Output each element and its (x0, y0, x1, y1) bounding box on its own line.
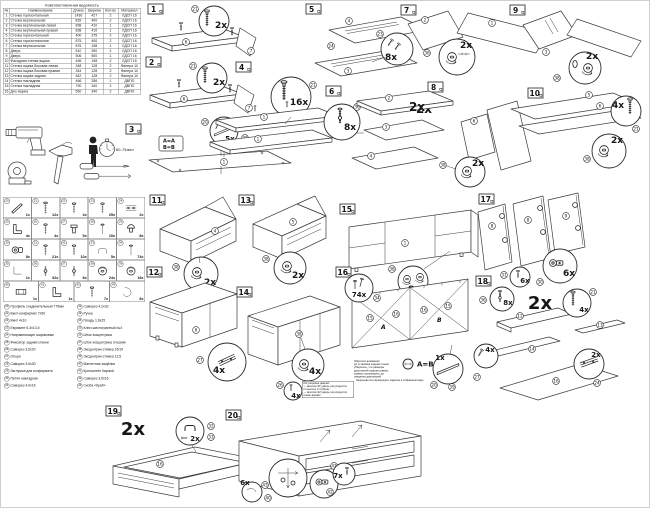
legend-item-text: Опора (11, 355, 21, 359)
hardware-icon (95, 264, 109, 278)
legend-item: 42 Саморез 3,5х16 (77, 375, 148, 382)
legend-item-number: 20 (4, 304, 10, 310)
legend-item: 31 Саморез 4,0х16 (4, 382, 75, 389)
hardware-item-qty: 5x (111, 255, 115, 260)
hardware-item: 25 4x (3, 218, 31, 239)
part-bubble: 9 (563, 213, 570, 220)
legend-item-number: 22 (4, 318, 10, 324)
hardware-icon (95, 243, 109, 257)
svg-text:7: 7 (248, 106, 251, 111)
svg-text:3: 3 (385, 125, 388, 130)
svg-text:9: 9 (565, 214, 568, 219)
svg-text:10: 10 (530, 89, 540, 98)
hardware-item-qty: 10x (80, 255, 86, 260)
part-bubble: 23 (377, 31, 384, 38)
part-bubble: 16 (157, 461, 164, 468)
svg-text:23: 23 (377, 32, 383, 37)
hardware-icon (39, 243, 53, 257)
tools-panel: 60-75мин (6, 127, 134, 184)
part-bubble: 3 (345, 68, 352, 75)
part-bubble: 24 (328, 43, 335, 50)
hardware-item: 27 5x (60, 218, 88, 239)
hardware-item-number: 21 (32, 198, 38, 204)
part-bubble: 2 (386, 95, 393, 102)
part-bubble: 6 (597, 103, 604, 110)
legend-item-number: 27 (4, 354, 10, 360)
qty-label: 2x (213, 78, 225, 88)
svg-text:18: 18 (478, 277, 488, 286)
col-header-wid: Ширина (86, 8, 103, 13)
screwdriver-flat-icon (80, 164, 129, 170)
svg-text:38: 38 (296, 332, 302, 337)
hardware-item-qty: 1x (68, 297, 72, 302)
part-bubble: 6 (181, 96, 188, 103)
hardware-item-qty: 21x (52, 255, 58, 260)
hardware-item-qty: 7x (104, 297, 108, 302)
assembly-time-label: 60-75мин (116, 148, 134, 152)
legend-item-text: Гвоздь 1,6х25 (84, 319, 106, 323)
assembly-instructions-sheet: 60-75мин 1 2x 21 6 7 2 2x 21 6 7 3 (0, 0, 650, 508)
hardware-item-qty: 5x (83, 234, 87, 239)
legend-item-text: Скоба «Краб» (84, 384, 106, 388)
hardware-item-qty: 12x (52, 213, 58, 218)
svg-text:2: 2 (424, 18, 427, 23)
svg-text:38: 38 (440, 163, 446, 168)
svg-text:16: 16 (393, 312, 399, 317)
legend-item-text: Саморез 3,5х16 (84, 377, 109, 381)
svg-text:16: 16 (553, 379, 559, 384)
hardware-item: 43 6x (110, 281, 146, 302)
part-bubble: 4 (212, 228, 219, 235)
hardware-item-number: 31 (32, 240, 38, 246)
svg-text:12: 12 (149, 268, 159, 277)
hardware-grid: 20 1x 21 12x 22 4x 23 25x (3, 197, 145, 302)
hardware-icon (39, 264, 53, 278)
parts-table: Комплектовочная ведомость № Наименование… (3, 3, 141, 94)
hardware-item-qty: 8x (83, 276, 87, 281)
hardware-item-qty: 1x (26, 213, 30, 218)
legend-item-text: Саморез 4,0х16 (11, 384, 36, 388)
svg-text:34: 34 (374, 296, 380, 301)
part-bubble: 38 (296, 331, 303, 338)
diagonal-letter-b: B (437, 317, 442, 324)
legend-item-number: 31 (4, 383, 10, 389)
legend-item: 23 Евровинт 6,3х13,5 (4, 325, 75, 332)
part-bubble: 42 (327, 489, 334, 496)
hardware-item-qty: 1x (26, 276, 30, 281)
legend-item: 39 Эксцентрик-стяжка 12,5 (77, 353, 148, 360)
qty-label: 8x (344, 123, 356, 133)
qty-label: 2x (460, 41, 472, 51)
part-bubble: 1 (255, 136, 262, 143)
hardware-item-number: 28 (89, 219, 95, 225)
hardware-item-number: 26 (32, 219, 38, 225)
svg-text:8: 8 (491, 224, 494, 229)
diagonal-letter-a: A (380, 324, 386, 331)
hardware-item-qty: 25x (109, 213, 115, 218)
hardware-item: 34 74x (117, 239, 145, 260)
svg-text:5: 5 (309, 5, 314, 14)
part-bubble: 3 (383, 124, 390, 131)
legend-item-number: 36 (77, 333, 83, 339)
col-header-len: Длина (71, 8, 85, 13)
hardware-item-number: 22 (61, 198, 67, 204)
hardware-item: 28 10x (88, 218, 116, 239)
legend-item: 33 Ручка (77, 310, 148, 317)
svg-text:3: 3 (129, 125, 134, 134)
qty-label: 2x (292, 271, 304, 281)
part-bubble: 16 (553, 378, 560, 385)
part-bubble: 36 (480, 297, 487, 304)
svg-text:1: 1 (404, 241, 407, 246)
part-bubble: 27 (474, 374, 481, 381)
svg-text:6: 6 (329, 87, 334, 96)
svg-text:16: 16 (338, 268, 348, 277)
part-bubble: 38 (263, 256, 270, 263)
legend-item-text: Винт 4х10 (11, 319, 27, 323)
part-bubble: 2 (422, 17, 429, 24)
legend-item-number: 37 (77, 340, 83, 346)
svg-text:12: 12 (517, 314, 523, 319)
svg-text:7: 7 (404, 6, 409, 15)
hardware-item-number: 30 (4, 240, 10, 246)
svg-text:15: 15 (445, 304, 451, 309)
hardware-icon (67, 222, 81, 236)
part-bubble: 38 (554, 75, 561, 82)
hardware-legend-right: 32 Саморез 4,2х32 33 Ручка 34 Гвоздь 1,6… (77, 303, 148, 389)
hardware-item-qty: 2x (139, 213, 143, 218)
stopwatch-icon (100, 139, 115, 157)
svg-text:20: 20 (431, 383, 437, 388)
caption-step-20: Запрещается перемещать изделие в собранн… (356, 379, 451, 382)
svg-text:2: 2 (388, 96, 391, 101)
svg-text:26: 26 (277, 383, 283, 388)
hardware-item-number: 25 (4, 219, 10, 225)
part-bubble: 21 (633, 126, 640, 133)
step-11: 11 4 2x 38 (150, 195, 236, 291)
hardware-item-number: 29 (118, 219, 124, 225)
hardware-item-number: 33 (89, 240, 95, 246)
parts-table-row: 16 Дно ящика 550 340 2 ДВПО (3, 89, 141, 94)
hardware-item-number: 42 (75, 282, 81, 288)
qty-label: 6x (563, 269, 575, 279)
svg-text:17: 17 (481, 195, 491, 204)
part-bubble: 21 (190, 63, 197, 70)
part-bubble: 6 (183, 39, 190, 46)
hardware-item-qty: 4x (83, 213, 87, 218)
hardware-item-number: 27 (61, 219, 67, 225)
legend-item: 27 Опора (4, 353, 75, 360)
part-bubble: 5 (290, 219, 297, 226)
part-bubble: 1 (261, 114, 268, 121)
svg-text:36: 36 (424, 51, 430, 56)
part-bubble: 38 (389, 266, 396, 273)
hardware-icon (39, 222, 53, 236)
legend-item-text: Саморез 4,2х32 (84, 305, 109, 309)
part-bubble: 14 (529, 346, 536, 353)
part-bubble: 7 (248, 48, 255, 55)
legend-item-text: Саморез 3,5х30 (11, 362, 36, 366)
legend-item-text: Евровинт 6,3х13,5 (11, 326, 40, 330)
part-bubble: 43 (262, 482, 269, 489)
legend-item-number: 41 (77, 369, 83, 375)
hardware-item-qty: 1x (33, 297, 37, 302)
drill-icon (6, 127, 45, 155)
note-step-20: Регулировка дверей: — винтом (41) дверь … (302, 381, 354, 398)
qty-label: 2x (190, 435, 200, 443)
legend-item: 43 Скоба «Краб» (77, 382, 148, 389)
hardware-item-number: 24 (118, 198, 124, 204)
step-1: 1 2x 21 6 7 (148, 4, 256, 56)
part-bubble: 1 (402, 240, 409, 247)
qty-label: 4x (579, 306, 589, 314)
qty-label: 6x (520, 277, 530, 285)
legend-item: 20 Профиль соединительный 775мм (4, 303, 75, 310)
hardware-icon (49, 285, 63, 299)
hardware-item: 38 24x (88, 260, 116, 281)
part-bubble: 21 (192, 6, 199, 13)
hardware-icon (95, 201, 109, 215)
hardware-icon (10, 264, 24, 278)
part-bubble: 39 (449, 384, 456, 391)
step-10: 10 5 6 4x 21 2x 38 (487, 88, 641, 170)
legend-item: 26 Саморез 3,5х20 (4, 346, 75, 353)
legend-item: 30 Петля накладная (4, 375, 75, 382)
qty-label: 2x (611, 136, 623, 146)
hardware-item: 23 25x (88, 197, 116, 218)
part-bubble: 5 (586, 92, 593, 99)
legend-item-number: 32 (77, 304, 83, 310)
svg-text:24: 24 (328, 44, 334, 49)
svg-text:27: 27 (474, 375, 480, 380)
legend-item-text: Ключ шестигранный №4 (84, 326, 123, 330)
hardware-item: 22 4x (60, 197, 88, 218)
part-bubble: 6 (193, 327, 200, 334)
hardware-item: 21 12x (31, 197, 59, 218)
svg-text:27: 27 (197, 358, 203, 363)
legend-item-number: 34 (77, 318, 83, 324)
hardware-icon (10, 201, 24, 215)
hardware-icon (39, 201, 53, 215)
part-bubble: 38 (584, 156, 591, 163)
part-bubble: 27 (197, 357, 204, 364)
qty-label: 2x (586, 52, 598, 62)
legend-item-number: 43 (77, 383, 83, 389)
hardware-icon (124, 264, 138, 278)
svg-text:21: 21 (190, 64, 196, 69)
hardware-item: 29 8x (117, 218, 145, 239)
part-bubble: 7 (246, 105, 253, 112)
hardware-icon (124, 201, 138, 215)
part-bubble: 30 (537, 279, 544, 286)
hardware-legend: 20 Профиль соединительный 775мм 21 Винт-… (4, 303, 148, 389)
legend-item-text: Эксцентрик-стяжка 15/19 (84, 348, 124, 352)
part-bubble: 13 (597, 322, 604, 329)
legend-item-text: Магнитная защёлка (84, 362, 115, 366)
svg-text:40: 40 (265, 496, 271, 501)
hardware-item-number: 38 (89, 261, 95, 267)
step-13: 13 5 2x 38 (239, 195, 326, 284)
svg-text:43: 43 (262, 483, 268, 488)
svg-text:3: 3 (347, 69, 350, 74)
hardware-icon (10, 222, 24, 236)
step-7: 7 2 1 2x 36 (401, 5, 547, 75)
hardware-icon (124, 222, 138, 236)
ab-note: B=B (163, 145, 175, 151)
qty-label: 2x (215, 21, 227, 31)
part-bubble: 1 (221, 159, 228, 166)
hardware-item-number: 36 (32, 261, 38, 267)
svg-text:1: 1 (257, 137, 260, 142)
legend-item-number: 26 (4, 347, 10, 353)
part-bubble: 3 (543, 49, 550, 56)
svg-text:6: 6 (183, 97, 186, 102)
legend-item: 29 Заглушка для конфирмата (4, 368, 75, 375)
hardware-item-number: 37 (61, 261, 67, 267)
person-icon (89, 137, 98, 167)
hardware-item: 35 1x (3, 260, 31, 281)
tape-measure-icon (8, 162, 31, 184)
multiplier-label: 2x (409, 100, 425, 114)
svg-text:38: 38 (584, 157, 590, 162)
legend-item: 32 Саморез 4,2х32 (77, 303, 148, 310)
hardware-item-number: 40 (4, 282, 10, 288)
legend-item: 40 Магнитная защёлка (77, 361, 148, 368)
part-bubble: 21 (310, 82, 317, 89)
step-17: 17 8 8 9 6x 31 6x 30 (478, 193, 585, 287)
svg-text:1: 1 (223, 160, 226, 165)
qty-label: 6x (240, 479, 250, 487)
legend-item-text: Направляющие шариковые (11, 334, 55, 338)
svg-text:8: 8 (527, 218, 530, 223)
legend-item-text: Ручка (84, 312, 93, 316)
svg-text:21: 21 (310, 83, 316, 88)
svg-text:11: 11 (152, 196, 162, 205)
legend-item-text: Фиксатор задней стенки (11, 341, 49, 345)
legend-item-number: 42 (77, 376, 83, 382)
legend-item-text: Петля накладная (11, 377, 38, 381)
svg-text:9: 9 (513, 6, 518, 15)
part-bubble: 8 (489, 223, 496, 230)
hardware-item-qty: 6x (139, 297, 143, 302)
svg-text:16: 16 (421, 308, 427, 313)
hardware-icon (67, 201, 81, 215)
hardware-item-qty: 74x (137, 255, 143, 260)
hardware-item-number: 23 (89, 198, 95, 204)
qty-label: 2x (472, 159, 484, 169)
legend-item: 24 Направляющие шариковые (4, 332, 75, 339)
svg-text:5: 5 (588, 93, 591, 98)
qty-label: 74x (352, 291, 367, 299)
svg-text:5: 5 (292, 220, 295, 225)
svg-text:6: 6 (473, 119, 476, 124)
screwdriver-phillips-icon (84, 174, 131, 180)
svg-text:15: 15 (367, 316, 373, 321)
hardware-item: 37 8x (60, 260, 88, 281)
legend-item: 28 Саморез 3,5х30 (4, 361, 75, 368)
part-bubble: 33 (208, 434, 215, 441)
hardware-icon (67, 243, 81, 257)
qty-label: 8x (503, 299, 513, 307)
hardware-item: 36 32x (31, 260, 59, 281)
hardware-item-number: 43 (111, 282, 117, 288)
hardware-item: 32 10x (60, 239, 88, 260)
part-bubble: 26 (277, 382, 284, 389)
part-bubble: 8 (525, 217, 532, 224)
parts-table-title: Комплектовочная ведомость (3, 3, 141, 8)
svg-text:1: 1 (263, 115, 266, 120)
legend-item-number: 35 (77, 325, 83, 331)
qty-label: 7x (333, 472, 343, 480)
hardware-icon (95, 222, 109, 236)
part-bubble: 34 (374, 295, 381, 302)
hardware-item: 24 2x (117, 197, 145, 218)
svg-text:19: 19 (108, 407, 118, 416)
part-bubble: 21 (590, 289, 597, 296)
part-bubble: 4 (346, 18, 353, 25)
hardware-icon (120, 285, 134, 299)
legend-item-text: Эксцентрик-стяжка 12,5 (84, 355, 122, 359)
hardware-icon (10, 243, 24, 257)
ab-note: A=A (163, 139, 175, 145)
legend-item-number: 40 (77, 361, 83, 367)
qty-label: 4x (213, 366, 225, 376)
svg-text:20: 20 (202, 120, 208, 125)
hammer-icon (49, 142, 72, 184)
legend-item-text: Шток эксцентрика плоский (84, 341, 126, 345)
legend-item-text: Шток эксцентрика (84, 334, 112, 338)
svg-text:7: 7 (250, 49, 253, 54)
svg-text:13: 13 (241, 196, 251, 205)
hardware-item: 40 1x (3, 281, 39, 302)
svg-text:33: 33 (208, 435, 214, 440)
svg-text:4: 4 (348, 19, 351, 24)
hardware-item-number: 35 (4, 261, 10, 267)
legend-item-number: 29 (4, 369, 10, 375)
qty-label: 4x (291, 392, 301, 400)
hardware-item-qty: 4x (26, 234, 30, 239)
hardware-icon (124, 243, 138, 257)
svg-text:21: 21 (633, 127, 639, 132)
legend-item-text: Саморез 3,5х20 (11, 348, 36, 352)
svg-text:24: 24 (594, 381, 600, 386)
svg-text:20: 20 (228, 411, 238, 420)
svg-text:38: 38 (263, 257, 269, 262)
legend-item: 36 Шток эксцентрика (77, 332, 148, 339)
hardware-item: 42 7x (74, 281, 110, 302)
svg-text:38: 38 (173, 265, 179, 270)
svg-text:36: 36 (480, 298, 486, 303)
legend-item: 38 Эксцентрик-стяжка 15/19 (77, 346, 148, 353)
hardware-item: 33 5x (88, 239, 116, 260)
svg-text:4: 4 (370, 154, 373, 159)
part-bubble: 4 (368, 153, 375, 160)
step-14: 14 38 4x (237, 287, 340, 381)
qty-label: 4x (309, 367, 321, 377)
step-18: 18 2x 12 14 13 16 8x 36 4x 21 4x 27 2x 2… (474, 276, 625, 400)
svg-text:13: 13 (597, 323, 603, 328)
legend-item-number: 28 (4, 361, 10, 367)
svg-text:14: 14 (529, 347, 535, 352)
step-20: 20 41 7x 42 6x 43 40 4x 26 (226, 382, 421, 502)
hardware-item: 39 16x (117, 260, 145, 281)
part-bubble: 32 (208, 423, 215, 430)
hardware-item-number: 39 (118, 261, 124, 267)
qty-label: 8x (385, 53, 397, 63)
hardware-item-qty: 8x (139, 234, 143, 239)
svg-text:3: 3 (545, 50, 548, 55)
hardware-item-number: 32 (61, 240, 67, 246)
